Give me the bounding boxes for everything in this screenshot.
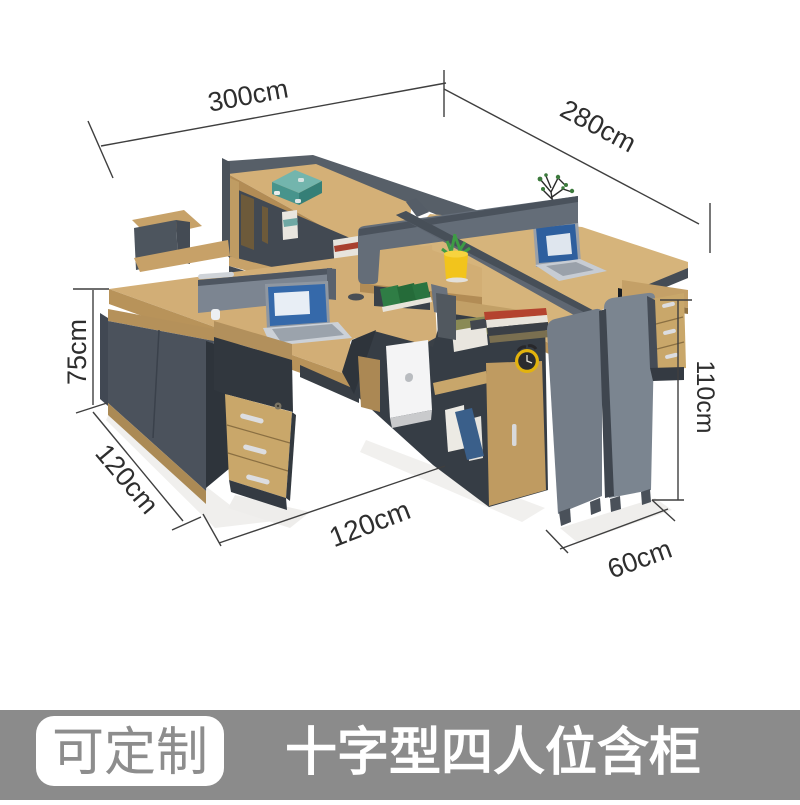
svg-text:110cm: 110cm xyxy=(691,360,719,433)
svg-text:75cm: 75cm xyxy=(62,319,92,385)
svg-text:十字型四人位含柜: 十字型四人位含柜 xyxy=(285,724,701,782)
svg-text:可定制: 可定制 xyxy=(52,724,208,782)
